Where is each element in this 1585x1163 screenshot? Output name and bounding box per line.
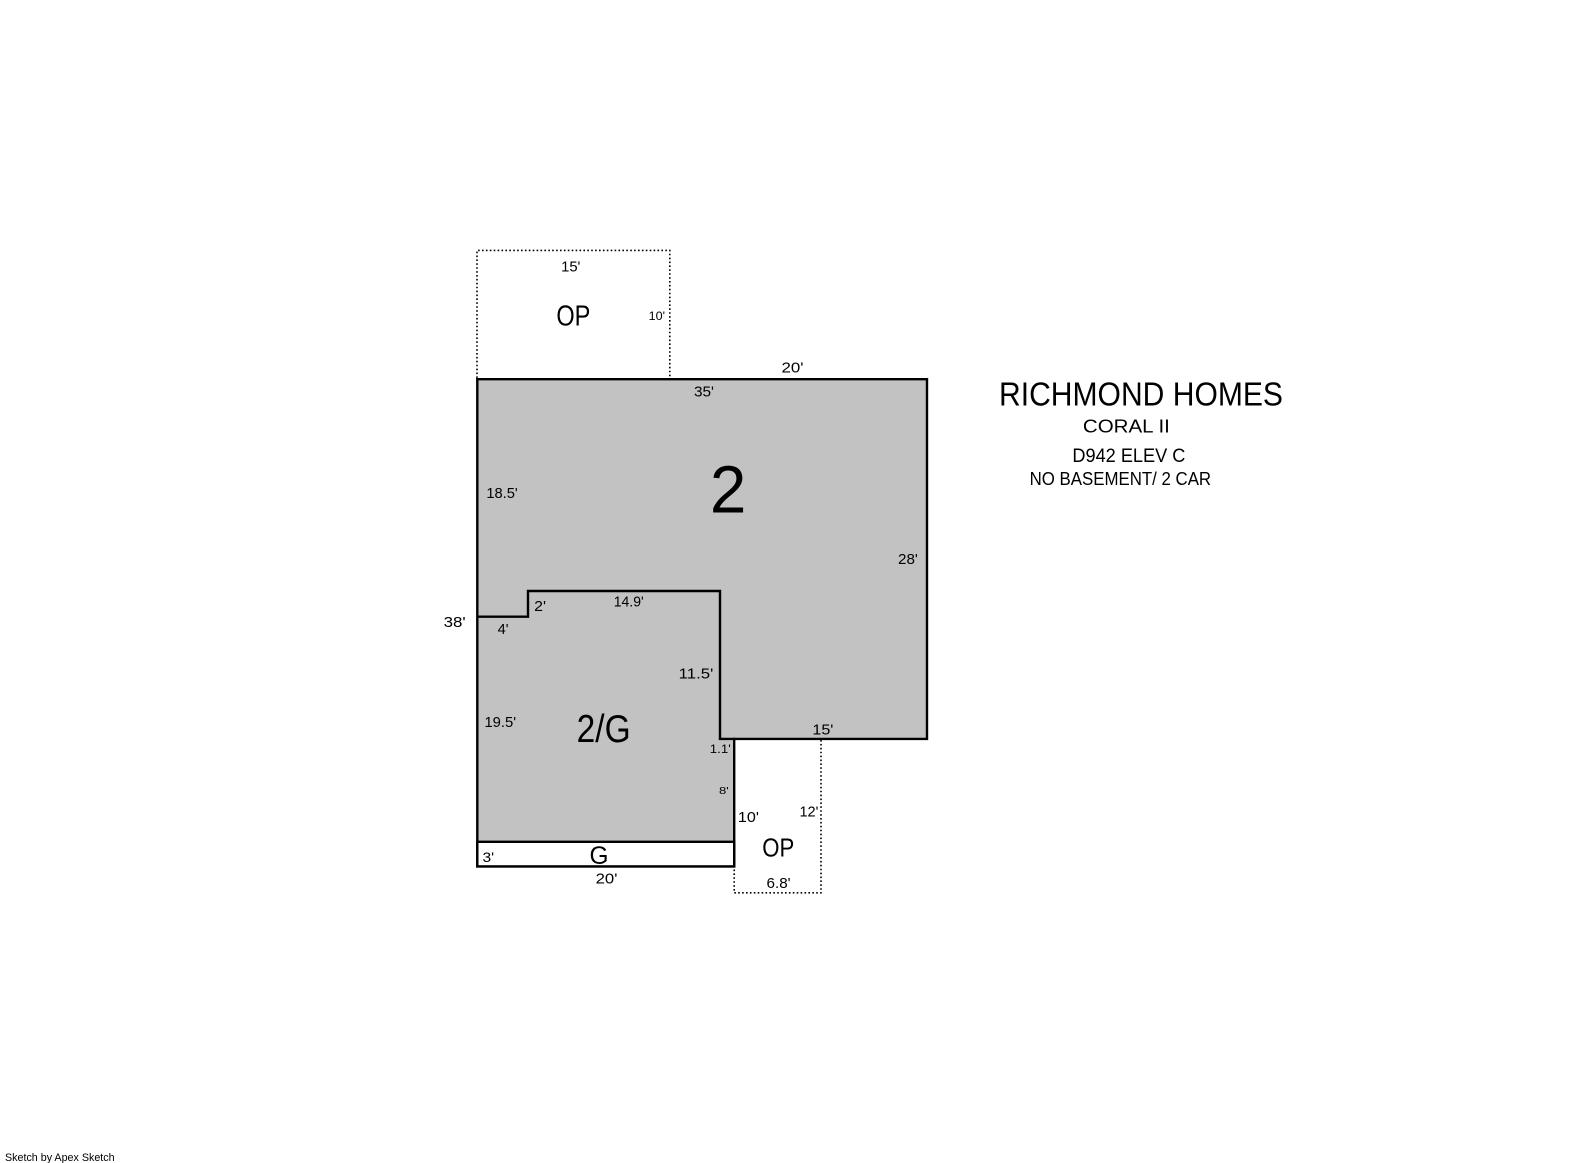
svg-text:20': 20' [782,360,804,377]
svg-text:38': 38' [444,614,466,631]
svg-text:2: 2 [710,453,747,528]
svg-text:2/G: 2/G [577,708,631,751]
svg-text:2': 2' [534,598,546,615]
svg-text:35': 35' [694,383,714,400]
svg-text:12': 12' [799,803,818,820]
svg-text:18.5': 18.5' [486,485,518,502]
svg-text:Sketch by Apex Sketch: Sketch by Apex Sketch [5,1152,115,1163]
svg-text:10': 10' [649,309,665,323]
svg-text:14.9': 14.9' [614,594,644,611]
svg-text:10': 10' [738,809,759,826]
svg-text:19.5': 19.5' [484,714,516,731]
svg-text:OP: OP [762,833,794,863]
svg-text:3': 3' [483,849,495,865]
svg-text:15': 15' [561,258,580,275]
svg-text:11.5': 11.5' [679,665,714,682]
svg-text:G: G [590,842,609,870]
svg-text:CORAL II: CORAL II [1083,417,1170,437]
svg-text:28': 28' [898,551,918,568]
svg-text:4': 4' [498,621,509,638]
svg-text:6.8': 6.8' [767,875,791,892]
svg-text:RICHMOND HOMES: RICHMOND HOMES [999,375,1283,412]
svg-text:1.1': 1.1' [710,742,731,756]
svg-text:D942 ELEV C: D942 ELEV C [1072,446,1185,467]
svg-text:NO BASEMENT/ 2 CAR: NO BASEMENT/ 2 CAR [1030,469,1212,489]
svg-text:OP: OP [556,301,590,333]
svg-text:15': 15' [812,721,833,738]
svg-text:8': 8' [719,786,729,797]
svg-text:20': 20' [596,870,618,887]
